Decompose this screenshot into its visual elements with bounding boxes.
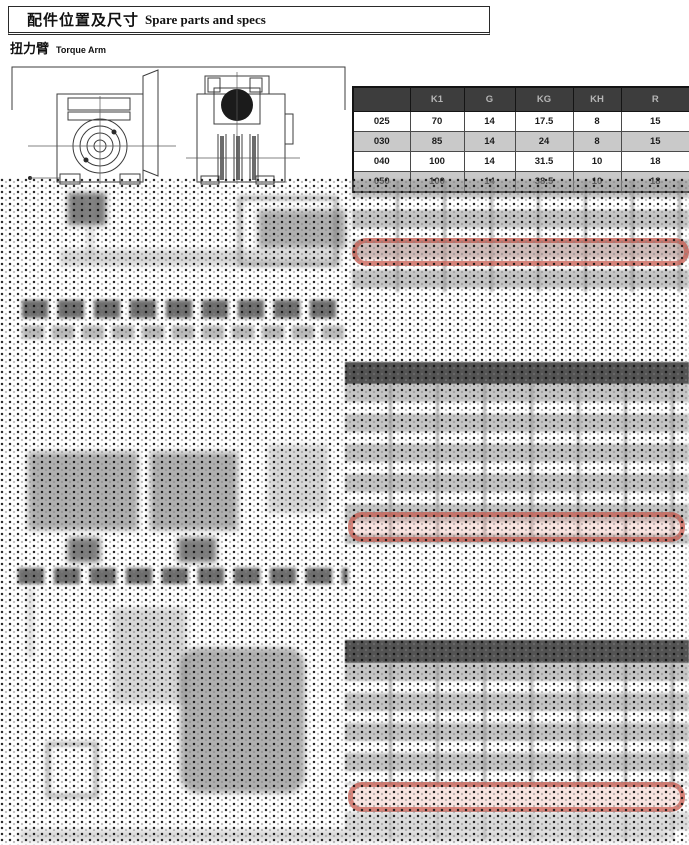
obscured-drawing-fragment xyxy=(178,538,216,562)
side-view-drawing xyxy=(186,72,300,184)
value-cell: 14 xyxy=(464,112,515,132)
obscured-caption-line xyxy=(18,568,348,584)
degraded-print-region xyxy=(0,178,689,845)
obscured-caption-line xyxy=(22,326,344,339)
value-cell: 17.5 xyxy=(515,112,573,132)
value-cell: 15 xyxy=(621,132,689,152)
value-cell: 15 xyxy=(621,112,689,132)
model-cell: 040 xyxy=(353,152,410,172)
value-cell: 85 xyxy=(410,132,464,152)
section-subtitle: 扭力臂 Torque Arm xyxy=(10,38,106,57)
highlight-row-1 xyxy=(352,238,689,266)
obscured-drawing-fragment xyxy=(60,250,340,266)
section-subtitle-zh: 扭力臂 xyxy=(10,38,49,57)
obscured-table-3-body xyxy=(345,663,689,785)
obscured-drawing-fragment xyxy=(150,452,238,530)
value-cell: 14 xyxy=(464,132,515,152)
obscured-drawing-fragment xyxy=(28,588,33,658)
table-row: 040 100 14 31.5 10 18 xyxy=(353,152,689,172)
obscured-drawing-fragment xyxy=(180,648,305,793)
model-cell: 025 xyxy=(353,112,410,132)
value-cell: 24 xyxy=(515,132,573,152)
dimension-bracket xyxy=(12,67,345,110)
header-cell-g: G xyxy=(464,87,515,112)
header-cell-r: R xyxy=(621,87,689,112)
obscured-drawing-fragment xyxy=(28,452,138,530)
obscured-table-3-header xyxy=(345,640,689,663)
highlight-row-2 xyxy=(348,512,685,542)
header-cell-k1: K1 xyxy=(410,87,464,112)
front-view-drawing xyxy=(28,70,176,184)
highlight-row-3 xyxy=(348,782,685,812)
obscured-caption-line xyxy=(22,300,344,318)
spec-table-header-row: K1 G KG KH R xyxy=(353,87,689,112)
header-cell-model xyxy=(353,87,410,112)
obscured-drawing-fragment xyxy=(268,445,328,513)
obscured-table-2-header xyxy=(345,362,689,384)
value-cell: 8 xyxy=(573,132,621,152)
value-cell: 100 xyxy=(410,152,464,172)
obscured-drawing-fragment xyxy=(68,538,100,562)
obscured-drawing-fragment xyxy=(46,742,98,798)
obscured-drawing-fragment xyxy=(88,196,93,256)
page-title-en: Spare parts and specs xyxy=(145,12,266,28)
header-cell-kh: KH xyxy=(573,87,621,112)
value-cell: 8 xyxy=(573,112,621,132)
model-cell: 030 xyxy=(353,132,410,152)
page-title-zh: 配件位置及尺寸 xyxy=(27,9,139,30)
value-cell: 10 xyxy=(573,152,621,172)
header-cell-kg: KG xyxy=(515,87,573,112)
value-cell: 14 xyxy=(464,152,515,172)
obscured-drawing-fragment xyxy=(112,608,187,703)
section-subtitle-en: Torque Arm xyxy=(56,45,106,55)
obscured-drawing-fragment xyxy=(258,210,346,248)
table-row: 025 70 14 17.5 8 15 xyxy=(353,112,689,132)
obscured-caption-line xyxy=(20,830,670,841)
table-row: 030 85 14 24 8 15 xyxy=(353,132,689,152)
obscured-table-1-continuation xyxy=(352,180,689,292)
catalog-page: 配件位置及尺寸 Spare parts and specs 扭力臂 Torque… xyxy=(0,0,689,845)
value-cell: 18 xyxy=(621,152,689,172)
page-title-box: 配件位置及尺寸 Spare parts and specs xyxy=(8,6,490,35)
value-cell: 70 xyxy=(410,112,464,132)
torque-arm-spec-table: K1 G KG KH R 025 70 14 17.5 8 15 030 85 … xyxy=(352,86,689,193)
obscured-drawing-fragment xyxy=(68,193,106,225)
value-cell: 31.5 xyxy=(515,152,573,172)
torque-arm-drawings xyxy=(0,58,350,186)
